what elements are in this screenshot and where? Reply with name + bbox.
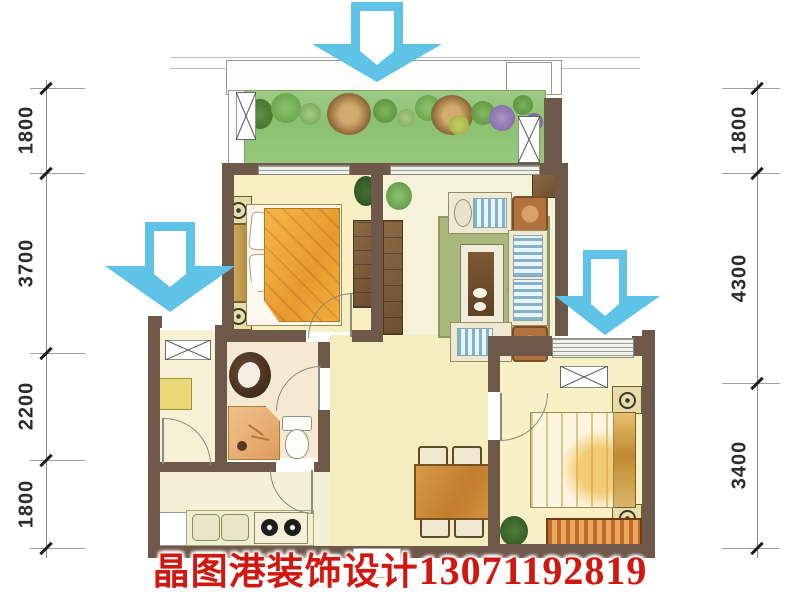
door-leaf bbox=[350, 293, 352, 337]
window bbox=[258, 165, 350, 175]
shower bbox=[228, 406, 280, 460]
door-leaf bbox=[311, 470, 313, 513]
nightstand bbox=[612, 386, 642, 414]
plant-icon bbox=[449, 115, 469, 135]
dimension-line bbox=[46, 80, 47, 558]
burner-icon bbox=[261, 519, 278, 536]
side-table bbox=[532, 174, 556, 198]
tableware bbox=[473, 288, 487, 298]
tree-icon bbox=[327, 93, 371, 135]
down-arrow-icon bbox=[546, 250, 666, 338]
phone-number: 13071192819 bbox=[419, 548, 648, 593]
balcony-garden bbox=[244, 90, 546, 166]
door-leaf bbox=[318, 366, 320, 410]
plant-icon bbox=[299, 103, 321, 125]
wall bbox=[318, 342, 330, 368]
wall bbox=[352, 330, 383, 342]
wall bbox=[544, 98, 562, 165]
plant-icon bbox=[489, 105, 515, 131]
plant-icon bbox=[271, 93, 301, 123]
sofa bbox=[448, 192, 512, 234]
plant-icon bbox=[373, 99, 397, 123]
wall bbox=[215, 325, 227, 472]
sink bbox=[221, 514, 249, 541]
ac-platform-xbox bbox=[560, 366, 608, 388]
extension-line bbox=[30, 88, 85, 89]
bed bbox=[530, 412, 614, 508]
watermark-text: 晶图港装饰设计13071192819 bbox=[153, 541, 648, 595]
extension-line bbox=[30, 353, 85, 354]
dimension-line bbox=[757, 80, 758, 558]
wall bbox=[222, 330, 306, 342]
burner-icon bbox=[284, 519, 301, 536]
shower-head bbox=[237, 441, 247, 451]
column-xbox bbox=[236, 92, 256, 140]
sofa-cushion bbox=[473, 198, 507, 228]
wall bbox=[642, 330, 655, 558]
door-leaf bbox=[500, 393, 502, 440]
extension-line bbox=[30, 460, 85, 461]
dimension-label: 1800 bbox=[16, 106, 39, 155]
dimension-label: 3700 bbox=[16, 239, 39, 288]
sofa-cushion bbox=[454, 199, 472, 227]
dimension-label: 2200 bbox=[16, 382, 39, 431]
brand-name: 晶图港装饰设计 bbox=[153, 551, 419, 592]
plant-icon bbox=[386, 182, 412, 210]
wall bbox=[314, 462, 330, 472]
sofa-cushion bbox=[513, 279, 543, 321]
tableware bbox=[474, 302, 486, 311]
dimension-label: 1800 bbox=[16, 480, 39, 529]
sink bbox=[192, 514, 220, 541]
door-leaf bbox=[162, 418, 164, 464]
dimension-label: 1800 bbox=[729, 106, 752, 155]
tv-cabinet bbox=[383, 220, 403, 335]
extension-line bbox=[30, 548, 85, 549]
wall bbox=[488, 336, 552, 356]
sofa-cushion bbox=[513, 235, 543, 277]
plant-icon bbox=[513, 95, 533, 115]
wall bbox=[632, 336, 655, 356]
floor-plan-image: 1800 3700 2200 1800 1800 4300 3400 bbox=[0, 0, 800, 595]
dimension-label: 3400 bbox=[729, 441, 752, 490]
extension-line bbox=[30, 173, 85, 174]
extension-line bbox=[722, 548, 780, 549]
shoe-cabinet bbox=[158, 378, 192, 410]
down-arrow-icon bbox=[100, 222, 240, 314]
wardrobe bbox=[353, 220, 373, 308]
down-arrow-icon bbox=[305, 2, 450, 86]
sliding-door-window bbox=[390, 165, 540, 175]
sofa bbox=[508, 230, 548, 326]
plant-icon bbox=[397, 109, 415, 127]
wall bbox=[488, 356, 500, 392]
armchair bbox=[512, 196, 548, 232]
wall bbox=[371, 163, 383, 342]
extension-line bbox=[722, 383, 780, 384]
basin-bowl bbox=[235, 359, 264, 391]
stove bbox=[254, 512, 308, 544]
spray-line bbox=[251, 435, 269, 441]
wall bbox=[148, 318, 160, 558]
column-xbox bbox=[518, 116, 540, 163]
dining-table bbox=[414, 464, 490, 520]
extension-line bbox=[722, 173, 780, 174]
toilet-bowl bbox=[285, 429, 309, 459]
extension-line bbox=[722, 88, 780, 89]
dimension-label: 4300 bbox=[729, 254, 752, 303]
window bbox=[552, 338, 634, 358]
wash-basin bbox=[229, 352, 271, 398]
lamp-icon bbox=[619, 392, 636, 409]
window-xbox bbox=[165, 340, 211, 360]
